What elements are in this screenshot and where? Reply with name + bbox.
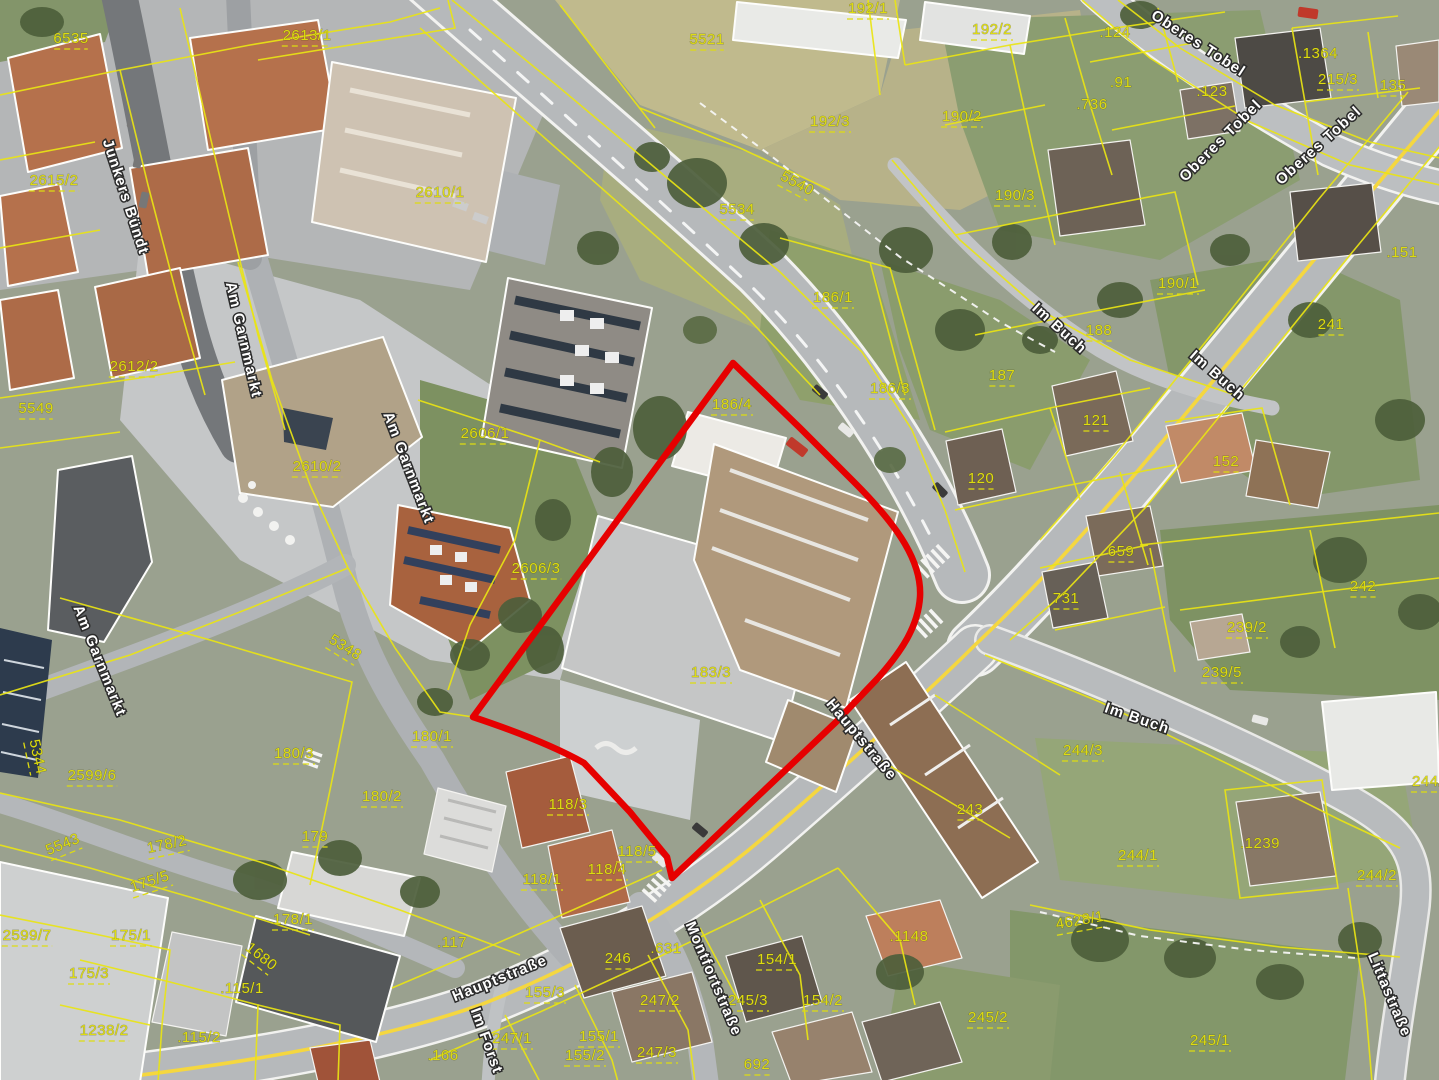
- parcel-number-label: 175/3: [68, 965, 110, 984]
- svg-text:2613/1: 2613/1: [283, 27, 332, 44]
- parcel-number-label: 180/2: [361, 788, 403, 807]
- svg-text:186/3: 186/3: [870, 380, 910, 397]
- svg-text:5521: 5521: [689, 31, 724, 48]
- parcel-number-label: .91: [1110, 74, 1132, 91]
- svg-text:186/1: 186/1: [813, 289, 853, 306]
- parcel-number-label: 154/1: [756, 951, 798, 970]
- parcel-number-label: 186/4: [711, 396, 753, 415]
- svg-text:6535: 6535: [53, 30, 88, 47]
- svg-text:178/1: 178/1: [273, 911, 313, 928]
- parcel-number-label: 192/1: [847, 0, 889, 19]
- parcel-number-label: 2606/1: [460, 425, 510, 444]
- svg-text:.166: .166: [427, 1047, 458, 1064]
- parcel-number-label: 178/1: [272, 911, 314, 930]
- parcel-number-label: 2612/2: [109, 358, 159, 377]
- svg-text:118/4: 118/4: [588, 861, 627, 878]
- svg-text:5549: 5549: [18, 400, 53, 417]
- parcel-number-label: 135: [1380, 77, 1407, 96]
- svg-text:2610/1: 2610/1: [416, 184, 465, 201]
- svg-text:190/3: 190/3: [995, 187, 1035, 204]
- svg-text:192/3: 192/3: [810, 113, 850, 130]
- parcel-number-label: 239/5: [1201, 664, 1243, 683]
- svg-text:135: 135: [1380, 77, 1407, 94]
- svg-text:175/3: 175/3: [69, 965, 109, 982]
- svg-text:215/3: 215/3: [1318, 71, 1358, 88]
- parcel-number-label: 2606/3: [511, 560, 561, 579]
- parcel-number-label: 155/1: [578, 1028, 620, 1047]
- parcel-number-label: 187: [989, 367, 1016, 386]
- parcel-number-label: 118/4: [586, 861, 628, 880]
- parcel-number-label: 154/2: [802, 992, 844, 1011]
- svg-text:179: 179: [302, 828, 329, 845]
- parcel-number-label: 192/2: [971, 21, 1013, 40]
- svg-text:.151: .151: [1386, 244, 1417, 261]
- svg-text:.736: .736: [1076, 96, 1107, 113]
- svg-text:5534: 5534: [719, 201, 754, 218]
- parcel-number-label: 2610/2: [292, 458, 342, 477]
- svg-text:244/2: 244/2: [1357, 867, 1397, 884]
- parcel-number-label: .736: [1076, 96, 1107, 113]
- parcel-number-label: 118/1: [521, 871, 563, 890]
- svg-text:245/2: 245/2: [968, 1009, 1008, 1026]
- parcel-number-label: 6535: [53, 30, 88, 49]
- svg-text:183/3: 183/3: [691, 664, 731, 681]
- svg-text:180/3: 180/3: [274, 745, 314, 762]
- parcel-number-label: .123: [1196, 83, 1227, 100]
- parcel-number-label: 121: [1083, 412, 1110, 431]
- parcel-number-label: 692: [744, 1056, 771, 1075]
- parcel-number-label: 188: [1086, 322, 1113, 341]
- parcel-number-label: 244/2: [1356, 867, 1398, 886]
- parcel-number-label: 2599/6: [67, 767, 117, 786]
- parcel-number-label: 155/2: [564, 1047, 606, 1066]
- parcel-number-label: 5549: [18, 400, 53, 419]
- svg-text:239/5: 239/5: [1202, 664, 1242, 681]
- svg-text:239/2: 239/2: [1227, 619, 1267, 636]
- aerial-map[interactable]: 65352615/22613/12610/12610/22612/2554953…: [0, 0, 1439, 1080]
- svg-text:2606/1: 2606/1: [461, 425, 510, 442]
- svg-text:659: 659: [1108, 543, 1135, 560]
- parcel-number-label: .124: [1099, 24, 1130, 41]
- svg-text:187: 187: [989, 367, 1016, 384]
- svg-text:155/2: 155/2: [565, 1047, 605, 1064]
- parcel-number-label: 118/3: [547, 796, 589, 815]
- svg-text:154/2: 154/2: [803, 992, 843, 1009]
- svg-text:.115/2: .115/2: [177, 1029, 221, 1046]
- svg-text:692: 692: [744, 1056, 771, 1073]
- svg-text:247/3: 247/3: [637, 1044, 677, 1061]
- parcel-number-label: 192/3: [809, 113, 851, 132]
- svg-text:180/1: 180/1: [412, 728, 452, 745]
- parcel-number-label: .1364: [1298, 45, 1338, 62]
- parcel-number-label: 241: [1318, 316, 1345, 335]
- parcel-number-label: 1238/2: [79, 1022, 129, 1041]
- parcel-number-label: .151: [1386, 244, 1417, 261]
- parcel-number-label: 2610/1: [415, 184, 465, 203]
- svg-text:188: 188: [1086, 322, 1113, 339]
- svg-text:155/3: 155/3: [525, 984, 565, 1001]
- svg-text:155/1: 155/1: [579, 1028, 619, 1045]
- parcel-number-label: .1148: [890, 928, 929, 945]
- svg-text:.631: .631: [650, 940, 681, 957]
- parcel-number-label: 183/3: [690, 664, 732, 683]
- svg-text:241: 241: [1318, 316, 1345, 333]
- parcel-number-label: 120: [968, 470, 995, 489]
- parcel-number-label: .1239: [1240, 835, 1280, 852]
- parcel-number-label: 244/1: [1117, 847, 1159, 866]
- svg-text:.1364: .1364: [1298, 45, 1338, 62]
- svg-text:244/7: 244/7: [1412, 773, 1439, 790]
- parcel-number-label: .166: [427, 1047, 458, 1064]
- svg-text:120: 120: [968, 470, 995, 487]
- svg-text:245/1: 245/1: [1190, 1032, 1230, 1049]
- parcel-number-label: 245/2: [967, 1009, 1009, 1028]
- parcel-number-label: 2615/2: [29, 172, 79, 191]
- parcel-number-label: 118/5: [616, 843, 658, 862]
- parcel-number-label: 659: [1108, 543, 1135, 562]
- parcel-number-label: 242: [1350, 578, 1377, 597]
- svg-text:118/3: 118/3: [549, 796, 588, 813]
- parcel-number-label: 190/1: [1157, 275, 1199, 294]
- svg-text:.1148: .1148: [890, 928, 929, 945]
- svg-text:.124: .124: [1099, 24, 1130, 41]
- parcel-number-label: 186/1: [812, 289, 854, 308]
- parcel-number-label: 186/3: [869, 380, 911, 399]
- svg-text:2612/2: 2612/2: [110, 358, 159, 375]
- parcel-number-label: 244/3: [1062, 742, 1104, 761]
- svg-text:154/1: 154/1: [757, 951, 797, 968]
- parcel-number-label: 244/7: [1411, 773, 1439, 792]
- svg-text:1238/2: 1238/2: [80, 1022, 129, 1039]
- parcel-number-label: .631: [650, 940, 681, 957]
- parcel-number-label: 5521: [689, 31, 724, 50]
- parcel-number-label: 239/2: [1226, 619, 1268, 638]
- svg-text:246: 246: [605, 950, 632, 967]
- svg-text:121: 121: [1083, 412, 1110, 429]
- parcel-number-label: 731: [1053, 590, 1080, 609]
- svg-text:192/2: 192/2: [972, 21, 1012, 38]
- svg-text:244/3: 244/3: [1063, 742, 1103, 759]
- svg-text:243: 243: [957, 801, 984, 818]
- svg-text:118/5: 118/5: [618, 843, 657, 860]
- svg-text:2599/7: 2599/7: [3, 927, 52, 944]
- svg-text:.117: .117: [437, 934, 467, 951]
- svg-text:152: 152: [1213, 453, 1240, 470]
- svg-text:.115/1: .115/1: [220, 980, 264, 997]
- parcel-number-label: .115/2: [177, 1029, 221, 1046]
- parcel-number-label: 190/3: [994, 187, 1036, 206]
- parcel-number-label: 2613/1: [282, 27, 332, 46]
- parcel-number-label: 2599/7: [2, 927, 52, 946]
- svg-text:186/4: 186/4: [712, 396, 752, 413]
- parcel-number-label: 152: [1213, 453, 1240, 472]
- svg-text:247/1: 247/1: [492, 1030, 532, 1047]
- svg-text:2615/2: 2615/2: [30, 172, 79, 189]
- svg-text:731: 731: [1053, 590, 1080, 607]
- svg-text:244/1: 244/1: [1118, 847, 1158, 864]
- svg-text:247/2: 247/2: [640, 992, 680, 1009]
- svg-text:190/2: 190/2: [942, 108, 982, 125]
- parcel-number-label: 180/1: [411, 728, 453, 747]
- parcel-number-label: 215/3: [1317, 71, 1359, 90]
- svg-text:2599/6: 2599/6: [68, 767, 117, 784]
- svg-text:.123: .123: [1196, 83, 1227, 100]
- svg-text:190/1: 190/1: [1158, 275, 1198, 292]
- parcel-number-label: .115/1: [220, 980, 264, 997]
- parcel-number-label: 175/1: [110, 927, 152, 946]
- parcel-number-label: 179: [302, 828, 329, 847]
- svg-text:180/2: 180/2: [362, 788, 402, 805]
- svg-text:175/1: 175/1: [111, 927, 151, 944]
- svg-text:2606/3: 2606/3: [512, 560, 561, 577]
- svg-text:.91: .91: [1110, 74, 1132, 91]
- parcel-number-label: 190/2: [941, 108, 983, 127]
- parcel-number-label: 245/1: [1189, 1032, 1231, 1051]
- parcel-number-label: 243: [957, 801, 984, 820]
- svg-text:.1239: .1239: [1240, 835, 1280, 852]
- map-viewport[interactable]: 65352615/22613/12610/12610/22612/2554953…: [0, 0, 1439, 1080]
- parcel-number-label: 155/3: [524, 984, 566, 1003]
- svg-text:2610/2: 2610/2: [293, 458, 342, 475]
- parcel-number-label: 5534: [719, 201, 754, 220]
- svg-text:242: 242: [1350, 578, 1377, 595]
- svg-text:118/1: 118/1: [523, 871, 562, 888]
- parcel-number-label: .117: [437, 934, 467, 951]
- svg-text:192/1: 192/1: [848, 0, 888, 17]
- parcel-number-label: 246: [605, 950, 632, 969]
- parcel-number-label: 247/2: [639, 992, 681, 1011]
- parcel-number-label: 180/3: [273, 745, 315, 764]
- parcel-number-label: 247/3: [636, 1044, 678, 1063]
